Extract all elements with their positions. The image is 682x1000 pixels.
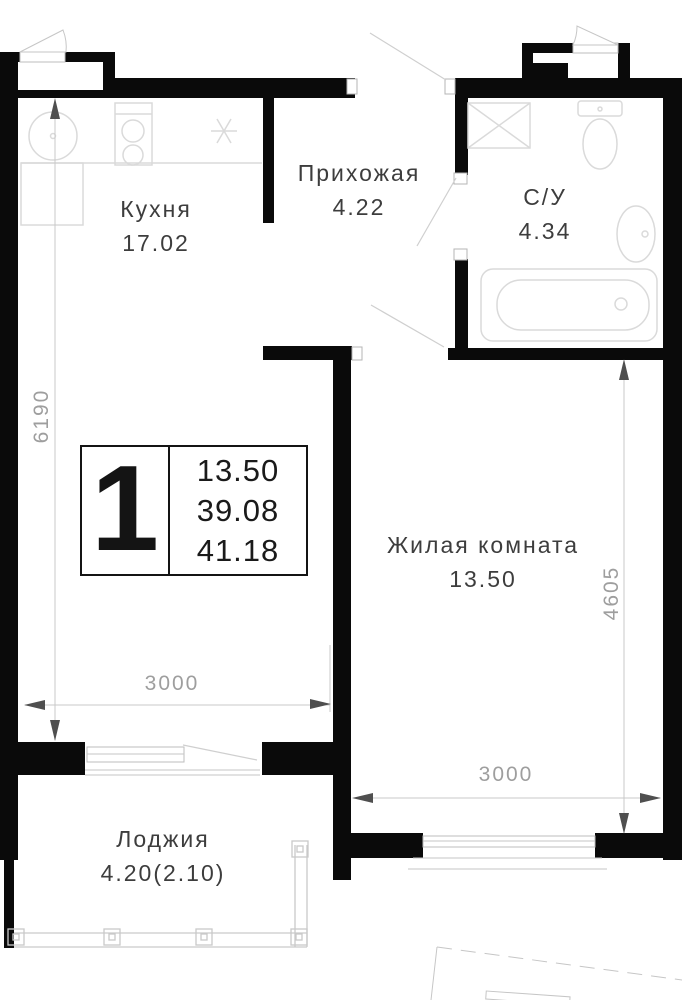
room-area: 17.02 xyxy=(46,226,266,260)
washing-machine-symbol xyxy=(468,103,530,148)
room-area: 4.34 xyxy=(460,214,630,248)
room-area: 4.20(2.10) xyxy=(28,856,298,890)
apartment-floor-plan: Кухня 17.02 Прихожая 4.22 С/У 4.34 Жилая… xyxy=(0,0,682,1000)
adjacent-unit-outline xyxy=(431,947,682,1000)
room-name: Кухня xyxy=(46,192,266,226)
dimension-living-width: 3000 xyxy=(446,763,566,787)
apartment-areas: 13.50 39.08 41.18 xyxy=(170,447,306,574)
room-label-hallway: Прихожая 4.22 xyxy=(249,156,469,224)
stamp-total-area: 41.18 xyxy=(170,531,306,571)
dimension-kitchen-width: 3000 xyxy=(112,672,232,696)
dimension-kitchen-height: 6190 xyxy=(30,356,54,476)
room-name: Лоджия xyxy=(28,822,298,856)
dimension-living-height: 4605 xyxy=(600,533,624,653)
toilet-symbol xyxy=(578,101,622,169)
kitchen-vent-window xyxy=(20,52,65,62)
kitchen-vent-window-swing xyxy=(20,30,66,52)
room-label-bathroom: С/У 4.34 xyxy=(460,180,630,248)
room-label-loggia: Лоджия 4.20(2.10) xyxy=(28,822,298,890)
apartment-stamp: 1 13.50 39.08 41.18 xyxy=(80,445,308,576)
room-name: Жилая комната xyxy=(333,528,633,562)
stove-symbol xyxy=(115,103,152,165)
room-name: С/У xyxy=(460,180,630,214)
stamp-living-area: 13.50 xyxy=(170,451,306,491)
room-label-kitchen: Кухня 17.02 xyxy=(46,192,266,260)
room-area: 13.50 xyxy=(333,562,633,596)
apartment-type-number: 1 xyxy=(82,447,170,574)
entrance-door-leaf xyxy=(370,33,446,80)
room-name: Прихожая xyxy=(249,156,469,190)
room-label-living: Жилая комната 13.50 xyxy=(333,528,633,596)
bathtub-symbol xyxy=(481,269,657,341)
bathroom-vent-window-swing xyxy=(573,26,618,45)
sink-symbol xyxy=(29,112,77,160)
living-room-door-leaf xyxy=(371,305,444,347)
stamp-area: 39.08 xyxy=(170,491,306,531)
vent-symbol xyxy=(211,119,237,143)
balcony-door-leaf xyxy=(183,745,257,760)
room-area: 4.22 xyxy=(249,190,469,224)
